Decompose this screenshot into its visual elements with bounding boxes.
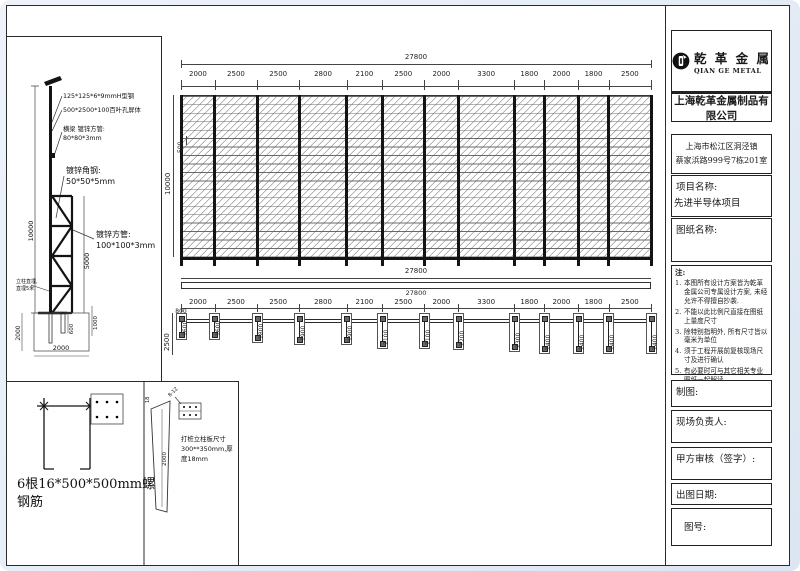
- elevation-segment-dim: 2000: [544, 71, 578, 78]
- address-line-1: 上海市松江区洞泾镇: [686, 140, 758, 154]
- note-number: 2.: [675, 308, 682, 326]
- draft-label: 制图:: [672, 381, 771, 398]
- project-label: 项目名称:: [672, 176, 771, 193]
- elevation-segment-dim: 2000: [181, 71, 215, 78]
- note-item: 2.不能以此比例尺直接在图纸上量度尺寸: [675, 308, 769, 326]
- elevation-panel: [578, 95, 608, 258]
- elevation-panel: [424, 95, 458, 258]
- elevation-panel: [609, 95, 651, 258]
- elevation-post: [381, 95, 384, 266]
- dim-tick: [181, 80, 182, 90]
- title-block: 乾 革 金 属 QIAN GE METAL 上海乾革金属制品有限公司 上海市松江…: [665, 6, 780, 565]
- dim-tick: [651, 80, 652, 90]
- elevation-segment-dim: 3300: [458, 71, 514, 78]
- drawing-name-box: 图纸名称:: [671, 218, 772, 262]
- notes-title: 注:: [675, 268, 769, 278]
- dim-ext: [186, 136, 187, 145]
- logo-text-cn: 乾 革 金 属: [694, 48, 771, 67]
- dim-tick: [347, 304, 348, 312]
- plan-segment-dimline: [181, 308, 651, 309]
- plan-post-depth-dim: 2400: [610, 334, 616, 349]
- plan-first-width-dim: 800: [169, 309, 193, 315]
- company-name: 上海乾革金属制品有限公司: [672, 94, 771, 121]
- plan-segment-dim: 1800: [514, 299, 544, 306]
- elevation-post: [577, 95, 580, 266]
- review-label: 甲方审核（签字）:: [672, 448, 771, 465]
- elevation-post: [607, 95, 610, 266]
- dim-tick: [347, 80, 348, 90]
- plan-total-dim: 27800: [181, 268, 651, 275]
- plan-post-depth-dim: 2200: [460, 331, 466, 346]
- plan-post-depth-dim: 2100: [384, 329, 390, 344]
- elevation-segment-dim: 2000: [424, 71, 458, 78]
- date-box: 出图日期:: [671, 483, 772, 505]
- dim-tick: [578, 80, 579, 90]
- plan-segment-dim: 2500: [257, 299, 299, 306]
- dim-tick: [458, 304, 459, 312]
- site-manager-box: 现场负责人:: [671, 410, 772, 443]
- elevation-base-beam: [181, 257, 651, 260]
- elevation-height-dim: 10000: [165, 173, 172, 195]
- elevation-panel: [181, 95, 215, 258]
- note-text: 本图所有设计方案皆为乾革金属公司专属设计方案, 未经允许不得擅自抄袭.: [684, 279, 769, 306]
- project-box: 项目名称: 先进半导体项目: [671, 175, 772, 217]
- draft-box: 制图:: [671, 380, 772, 407]
- elevation-post: [345, 95, 348, 266]
- dim-tick: [215, 304, 216, 312]
- address-box: 上海市松江区洞泾镇 蔡家浜路999号7栋201室: [671, 134, 772, 174]
- plan-segment-dim: 2800: [299, 299, 346, 306]
- elevation-segment-dimline: [181, 86, 651, 87]
- plan-post-depth-dim: 1900: [301, 326, 307, 341]
- dim-tick: [299, 304, 300, 312]
- plan-post-node: [255, 316, 261, 322]
- elevation-panel: [544, 95, 578, 258]
- plan-post-node: [344, 316, 350, 322]
- elevation-panel: [514, 95, 544, 258]
- plan-post-node: [576, 316, 582, 322]
- plan-post-node: [380, 316, 386, 322]
- elevation-segment-dim: 2500: [257, 71, 299, 78]
- plan-post-node: [297, 316, 303, 322]
- plan-bar-dim: 27800: [181, 290, 651, 297]
- plan-post-depth-dim: 1600: [216, 321, 222, 336]
- plan-segment-dim: 2000: [424, 299, 458, 306]
- note-text: 须于工程开展前复核现场尺寸及进行确认: [684, 347, 769, 365]
- plan-post-node: [542, 316, 548, 322]
- elevation-panel: [382, 95, 424, 258]
- elevation-segment-dim: 2800: [299, 71, 346, 78]
- elevation-post: [423, 95, 426, 266]
- plan-segment-dim: 2500: [382, 299, 424, 306]
- plan-post-depth-dim: 2100: [426, 329, 432, 344]
- plan-post-depth-dim: 1900: [348, 326, 354, 341]
- dim-tick: [424, 304, 425, 312]
- page-background: 10000 5000 600 1000 2000 2000 125*125*6*…: [0, 0, 800, 571]
- dim-tick: [514, 80, 515, 90]
- dim-tick: [299, 80, 300, 90]
- number-box: 图号:: [671, 508, 772, 546]
- dim-tick: [382, 304, 383, 312]
- drawing-name-label: 图纸名称:: [672, 219, 771, 236]
- elevation-post: [543, 95, 546, 266]
- note-item: 4.须于工程开展前复核现场尺寸及进行确认: [675, 347, 769, 365]
- elevation-post: [457, 95, 460, 266]
- elevation-post: [213, 95, 216, 266]
- plan-segment-dim: 2500: [215, 299, 257, 306]
- company-name-box: 上海乾革金属制品有限公司: [671, 92, 772, 122]
- project-value: 先进半导体项目: [672, 193, 771, 209]
- elevation-segment-dim: 1800: [514, 71, 544, 78]
- elevation-total-dim: 27800: [181, 54, 651, 61]
- plan-post-depth-dim: 2400: [580, 334, 586, 349]
- dim-tick: [651, 60, 652, 68]
- dim-tick: [257, 304, 258, 312]
- note-number: 4.: [675, 347, 682, 365]
- notes-list: 1.本图所有设计方案皆为乾革金属公司专属设计方案, 未经允许不得擅自抄袭.2.不…: [675, 279, 769, 385]
- main-drawing-area: 2000250025002800210025002000330018002000…: [7, 6, 659, 565]
- company-logo-icon: [672, 45, 690, 77]
- plan-segment-dim: 2000: [181, 299, 215, 306]
- elevation-segment-dim: 2500: [215, 71, 257, 78]
- dim-ext: [172, 313, 173, 355]
- elevation-post: [256, 95, 259, 266]
- dim-tick: [609, 80, 610, 90]
- plan-post-depth-dim: 1600: [183, 321, 189, 336]
- elevation-panel: [347, 95, 383, 258]
- drawing-sheet: 10000 5000 600 1000 2000 2000 125*125*6*…: [6, 5, 790, 566]
- elevation-band-dim: 500: [178, 142, 184, 153]
- review-box: 甲方审核（签字）:: [671, 447, 772, 480]
- dim-tick: [458, 80, 459, 90]
- elevation-post: [298, 95, 301, 266]
- logo-text-en: QIAN GE METAL: [694, 67, 771, 75]
- plan-bar: [181, 282, 651, 289]
- note-text: 除特别指明外, 所有尺寸皆以毫米为单位: [684, 328, 769, 346]
- note-item: 1.本图所有设计方案皆为乾革金属公司专属设计方案, 未经允许不得擅自抄袭.: [675, 279, 769, 306]
- note-number: 3.: [675, 328, 682, 346]
- elevation-post: [180, 95, 183, 266]
- plan-post-depth-dim: 2300: [516, 333, 522, 348]
- dim-tick: [215, 80, 216, 90]
- elevation-segment-dim: 1800: [578, 71, 608, 78]
- notes-box: 注: 1.本图所有设计方案皆为乾革金属公司专属设计方案, 未经允许不得擅自抄袭.…: [671, 265, 772, 375]
- plan-segment-dim: 1800: [578, 299, 608, 306]
- plan-post-node: [456, 316, 462, 322]
- dim-tick: [424, 80, 425, 90]
- dim-tick: [544, 304, 545, 312]
- dim-ext: [173, 95, 174, 257]
- elevation-panel: [215, 95, 257, 258]
- note-number: 1.: [675, 279, 682, 306]
- dim-tick: [609, 304, 610, 312]
- site-manager-label: 现场负责人:: [672, 411, 771, 428]
- plan-post-depth-dim: 1800: [259, 324, 265, 339]
- plan-post-depth-dim: 2400: [546, 334, 552, 349]
- elevation-panel: [257, 95, 299, 258]
- plan-post-node: [606, 316, 612, 322]
- dim-tick: [257, 80, 258, 90]
- elevation-segment-dim: 2100: [347, 71, 383, 78]
- address-line-2: 蔡家浜路999号7栋201室: [676, 154, 768, 168]
- plan-post-node: [649, 316, 655, 322]
- plan-post-node: [512, 316, 518, 322]
- dim-tick: [514, 304, 515, 312]
- note-text: 不能以此比例尺直接在图纸上量度尺寸: [684, 308, 769, 326]
- elevation-segment-dim: 2500: [382, 71, 424, 78]
- plan-post-depth-dim: 2400: [653, 334, 659, 349]
- dim-tick: [544, 80, 545, 90]
- plan-segment-dim: 2000: [544, 299, 578, 306]
- plan-segment-dim: 2100: [347, 299, 383, 306]
- dim-tick: [382, 80, 383, 90]
- plan-segment-dim: 2500: [609, 299, 651, 306]
- elevation-total-dimline: [181, 64, 651, 65]
- number-label: 图号:: [672, 509, 771, 533]
- plan-total-dimline: [181, 278, 651, 279]
- elevation-post: [513, 95, 516, 266]
- date-label: 出图日期:: [672, 484, 771, 501]
- note-item: 3.除特别指明外, 所有尺寸皆以毫米为单位: [675, 328, 769, 346]
- dim-tick: [578, 304, 579, 312]
- plan-post-node: [422, 316, 428, 322]
- elevation-panel: [299, 95, 346, 258]
- plan-segment-dim: 3300: [458, 299, 514, 306]
- logo-box: 乾 革 金 属 QIAN GE METAL: [671, 30, 772, 92]
- plan-left-dim: 2500: [164, 333, 171, 351]
- dim-tick: [651, 304, 652, 312]
- elevation-post: [650, 95, 653, 266]
- elevation-segment-dim: 2500: [609, 71, 651, 78]
- dim-tick: [181, 60, 182, 68]
- elevation-panel: [458, 95, 514, 258]
